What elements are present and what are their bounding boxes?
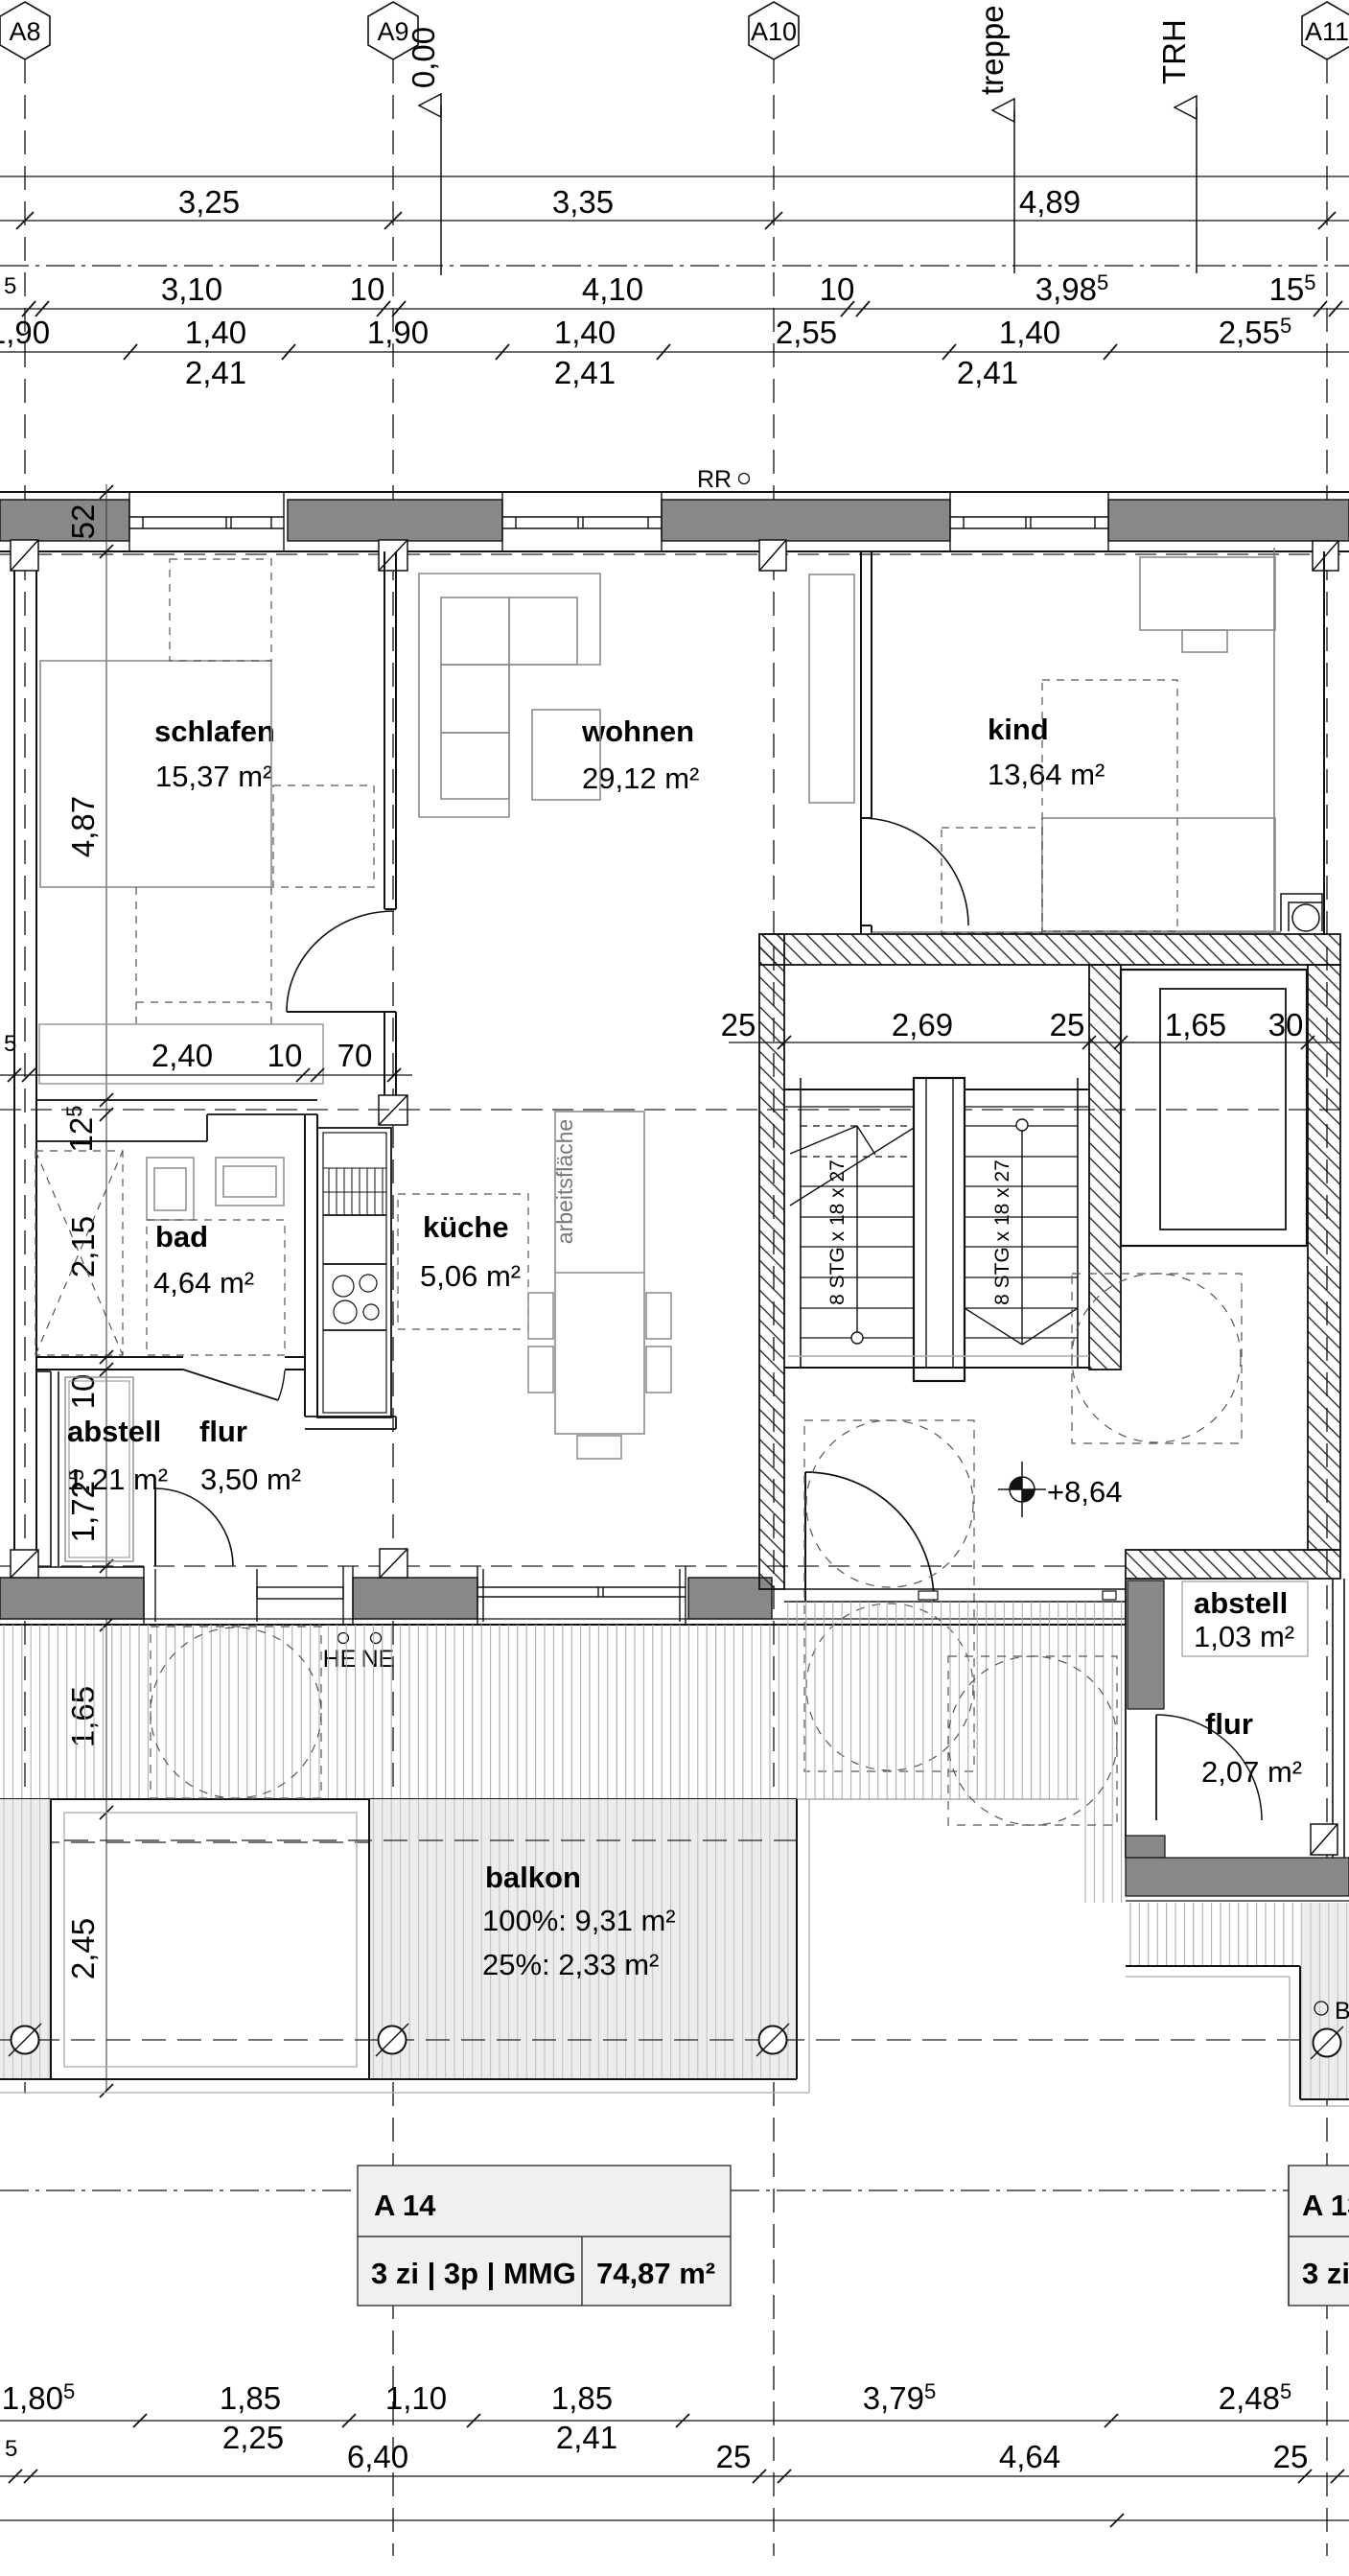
svg-text:1,40: 1,40 <box>999 315 1060 350</box>
svg-text:5,06 m²: 5,06 m² <box>420 1259 521 1293</box>
svg-text:25: 25 <box>1050 1007 1085 1042</box>
svg-text:2,41: 2,41 <box>957 355 1018 390</box>
svg-text:bad: bad <box>155 1220 208 1253</box>
svg-text:kind: kind <box>988 713 1049 746</box>
svg-text:3 zi: 3 zi <box>1302 2257 1349 2290</box>
svg-text:4,64 m²: 4,64 m² <box>153 1266 254 1300</box>
svg-text:3 zi | 3p | MMG: 3 zi | 3p | MMG <box>371 2257 576 2290</box>
svg-text:flur: flur <box>1205 1707 1253 1741</box>
svg-text:10: 10 <box>820 271 855 307</box>
svg-text:küche: küche <box>423 1210 509 1244</box>
svg-text:TRH: TRH <box>1156 19 1192 84</box>
svg-text:3,25: 3,25 <box>178 184 240 220</box>
svg-text:A 14: A 14 <box>374 2189 436 2222</box>
svg-text:74,87 m²: 74,87 m² <box>596 2257 715 2290</box>
svg-text:RR: RR <box>697 466 732 493</box>
svg-text:100%: 9,31 m²: 100%: 9,31 m² <box>482 1904 676 1937</box>
svg-text:A10: A10 <box>751 17 797 46</box>
svg-text:6,40: 6,40 <box>347 2439 408 2474</box>
svg-text:4,64: 4,64 <box>999 2439 1060 2474</box>
svg-text:70: 70 <box>337 1038 373 1073</box>
svg-text:10: 10 <box>65 1374 101 1410</box>
svg-text:A8: A8 <box>9 17 40 46</box>
svg-text:2,07 m²: 2,07 m² <box>1201 1755 1302 1789</box>
svg-text:1,85: 1,85 <box>551 2380 613 2416</box>
svg-text:treppe: treppe <box>974 5 1010 95</box>
svg-text:2,55: 2,55 <box>776 315 837 350</box>
svg-text:3,50 m²: 3,50 m² <box>200 1463 301 1496</box>
svg-text:1,40: 1,40 <box>185 315 246 350</box>
svg-text:abstell: abstell <box>67 1415 161 1448</box>
svg-text:1,90: 1,90 <box>367 315 429 350</box>
svg-text:8 STG x 18 x 27: 8 STG x 18 x 27 <box>991 1159 1013 1305</box>
svg-text:15,37 m²: 15,37 m² <box>155 760 272 793</box>
svg-text:1,65: 1,65 <box>1165 1007 1226 1042</box>
svg-text:wohnen: wohnen <box>581 714 694 748</box>
svg-text:3,35: 3,35 <box>552 184 614 220</box>
svg-text:5: 5 <box>4 1031 16 1057</box>
svg-text:10: 10 <box>350 271 385 307</box>
svg-text:2,41: 2,41 <box>556 2420 617 2455</box>
svg-text:25: 25 <box>716 2439 752 2474</box>
svg-text:4,89: 4,89 <box>1019 184 1081 220</box>
svg-text:13,64 m²: 13,64 m² <box>988 758 1105 791</box>
svg-text:5: 5 <box>5 2436 17 2462</box>
svg-text:1,90: 1,90 <box>0 315 50 350</box>
svg-text:1,40: 1,40 <box>554 315 616 350</box>
svg-text:abstell: abstell <box>1194 1586 1288 1620</box>
svg-text:+8,64: +8,64 <box>1047 1475 1122 1509</box>
svg-text:25: 25 <box>1273 2439 1309 2474</box>
svg-text:52: 52 <box>65 504 101 540</box>
svg-text:schlafen: schlafen <box>154 714 275 748</box>
svg-text:25%: 2,33 m²: 25%: 2,33 m² <box>482 1948 659 1981</box>
svg-text:1,21 m²: 1,21 m² <box>67 1463 168 1496</box>
svg-text:10: 10 <box>267 1038 303 1073</box>
svg-text:0,00: 0,00 <box>406 27 441 88</box>
svg-text:4,10: 4,10 <box>582 271 643 307</box>
svg-text:A11: A11 <box>1305 17 1349 46</box>
svg-text:25: 25 <box>721 1007 756 1042</box>
svg-text:1,03 m²: 1,03 m² <box>1194 1620 1294 1653</box>
svg-text:2,40: 2,40 <box>151 1038 213 1073</box>
svg-text:balkon: balkon <box>485 1861 581 1894</box>
svg-text:1,85: 1,85 <box>220 2380 281 2416</box>
svg-text:A 13: A 13 <box>1302 2189 1349 2222</box>
svg-text:2,45: 2,45 <box>65 1918 101 1979</box>
svg-text:2,25: 2,25 <box>222 2420 284 2455</box>
svg-text:3,10: 3,10 <box>161 271 222 307</box>
svg-text:arbeitsfläche: arbeitsfläche <box>552 1119 577 1244</box>
svg-text:flur: flur <box>199 1415 247 1448</box>
svg-text:4,87: 4,87 <box>65 796 101 857</box>
svg-text:2,69: 2,69 <box>892 1007 953 1042</box>
svg-text:B: B <box>1335 1998 1349 2025</box>
svg-text:2,41: 2,41 <box>554 355 616 390</box>
svg-text:5: 5 <box>4 273 16 299</box>
svg-text:2,15: 2,15 <box>65 1216 101 1277</box>
svg-text:8 STG x 18 x 27: 8 STG x 18 x 27 <box>826 1159 849 1305</box>
svg-text:1,10: 1,10 <box>385 2380 447 2416</box>
svg-text:A9: A9 <box>377 17 408 46</box>
svg-text:2,41: 2,41 <box>185 355 246 390</box>
